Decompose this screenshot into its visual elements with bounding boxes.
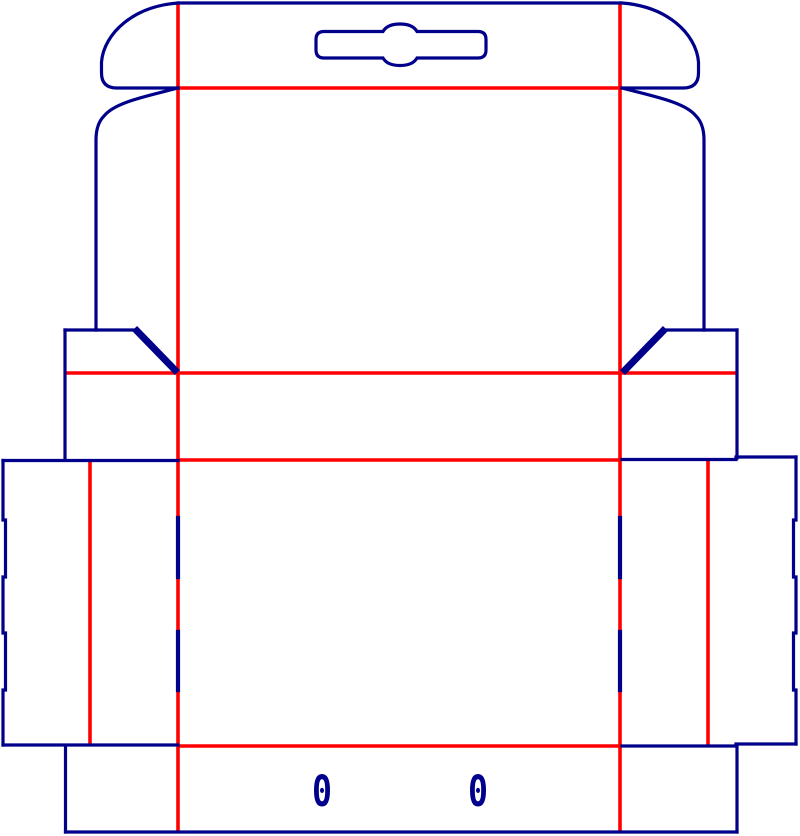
dieline-canvas: 0 0 <box>0 0 800 836</box>
cut-left-ear-diagonal <box>137 331 175 370</box>
cut-euro-hang-slot <box>316 24 486 66</box>
dieline-figure: 0 0 <box>0 0 800 836</box>
cut-hang-tab-right <box>622 3 699 88</box>
cut-hang-tab-left <box>102 3 179 88</box>
cut-right-ear-diagonal <box>625 331 663 370</box>
zero-mark-left: 0 <box>312 767 332 817</box>
cut-lines-layer <box>3 3 796 832</box>
cut-right-column-top <box>622 457 796 460</box>
crease-lines-layer <box>65 3 737 832</box>
panel-labels-layer: 0 0 <box>312 767 488 817</box>
cut-left-outer-edge <box>3 461 6 746</box>
cut-back-left-edge <box>96 88 178 330</box>
zero-mark-right: 0 <box>468 767 488 817</box>
cut-right-outer-edge <box>794 457 797 744</box>
cut-back-right-edge <box>622 88 704 330</box>
